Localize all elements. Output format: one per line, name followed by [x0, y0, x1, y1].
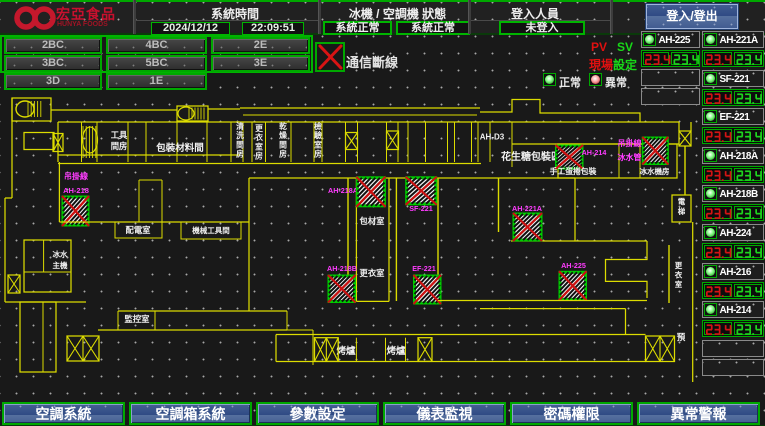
svg-text:預: 預: [677, 332, 686, 342]
svg-text:AH-221A: AH-221A: [512, 204, 542, 213]
svg-text:AH-225: AH-225: [561, 261, 586, 270]
svg-text:吊掛線: 吊掛線: [618, 138, 642, 148]
svg-text:監控室: 監控室: [125, 314, 151, 324]
svg-text:衣: 衣: [255, 132, 263, 142]
svg-text:清: 清: [236, 121, 244, 131]
svg-text:吊掛線: 吊掛線: [64, 171, 88, 181]
svg-text:房: 房: [255, 151, 263, 161]
svg-text:更衣室: 更衣室: [360, 268, 386, 278]
svg-text:AH-218: AH-218: [63, 186, 89, 195]
svg-text:室: 室: [314, 139, 322, 149]
svg-text:更: 更: [255, 124, 263, 133]
svg-text:間: 間: [279, 140, 287, 149]
svg-text:AH-D3: AH-D3: [480, 133, 505, 142]
svg-text:梯: 梯: [678, 206, 686, 216]
svg-text:機械工具間: 機械工具間: [192, 225, 230, 235]
svg-text:AH-214: AH-214: [582, 148, 607, 157]
svg-text:冰水管: 冰水管: [618, 152, 642, 162]
svg-text:冰水機房: 冰水機房: [640, 166, 670, 176]
svg-text:主機: 主機: [53, 260, 68, 270]
svg-text:SF-221: SF-221: [409, 204, 433, 213]
svg-text:乾: 乾: [279, 121, 287, 131]
svg-text:包裝材料間: 包裝材料間: [155, 142, 204, 154]
svg-text:檢: 檢: [314, 121, 322, 131]
svg-text:房: 房: [279, 149, 287, 159]
svg-text:更: 更: [675, 261, 683, 270]
svg-text:房: 房: [314, 149, 322, 159]
svg-text:烤爐: 烤爐: [386, 345, 406, 357]
svg-text:電: 電: [678, 196, 686, 206]
svg-text:花生糖包裝區: 花生糖包裝區: [501, 150, 561, 163]
svg-text:燥: 燥: [279, 130, 287, 140]
svg-text:間: 間: [236, 140, 244, 149]
svg-text:AH-218A: AH-218A: [328, 186, 358, 195]
svg-text:洗: 洗: [236, 130, 244, 140]
svg-text:間房: 間房: [111, 141, 128, 151]
svg-text:冰水: 冰水: [53, 249, 68, 259]
svg-text:AH-218B: AH-218B: [327, 264, 357, 273]
svg-text:工具: 工具: [111, 130, 128, 140]
svg-text:烤爐: 烤爐: [336, 345, 356, 357]
svg-text:房: 房: [236, 149, 244, 159]
svg-text:衣: 衣: [675, 270, 683, 280]
svg-text:室: 室: [255, 141, 263, 151]
svg-text:手工蛋捲包裝: 手工蛋捲包裝: [550, 166, 597, 176]
svg-text:EF-221: EF-221: [412, 264, 436, 273]
svg-text:室: 室: [675, 279, 683, 289]
svg-text:驗: 驗: [314, 130, 322, 140]
svg-text:包材室: 包材室: [359, 216, 386, 226]
svg-text:配電室: 配電室: [126, 225, 152, 235]
